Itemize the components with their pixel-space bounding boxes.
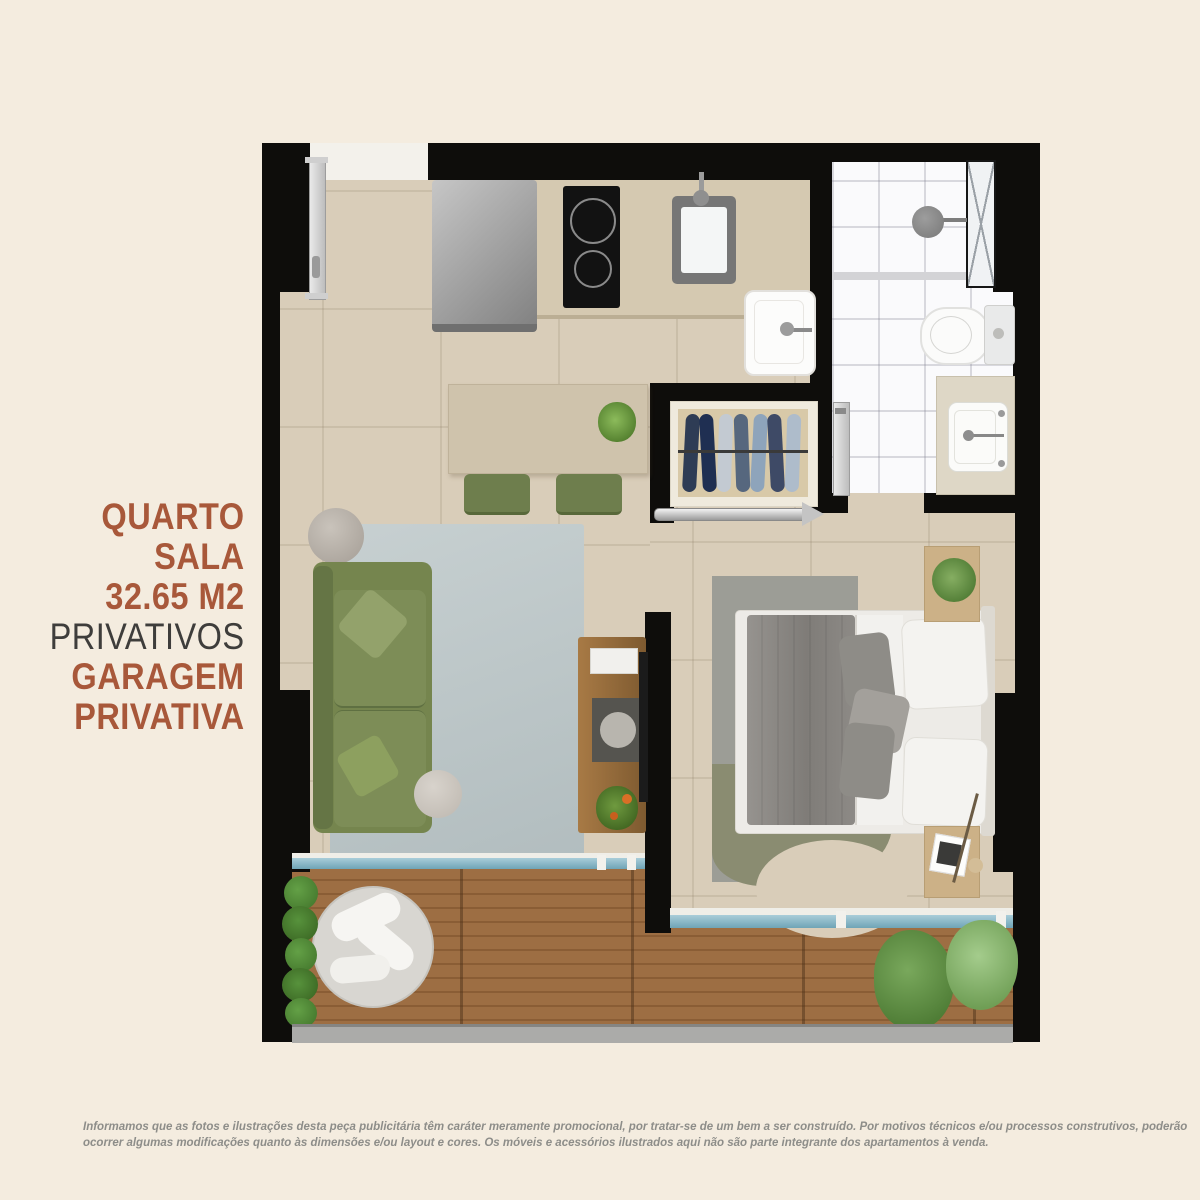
console-plant [596, 786, 638, 830]
floor-plan-marketing-page: QUARTO SALA 32.65 M2 PRIVATIVOS GARAGEM … [0, 0, 1200, 1200]
title-line: SALA [50, 537, 245, 577]
laundry-faucet-spout [792, 328, 812, 332]
laundry-tub-basin [754, 300, 804, 364]
wall-left-lower [262, 690, 310, 872]
bathroom-door-opening [848, 493, 924, 513]
balcony-plant [874, 930, 954, 1030]
table-plant [598, 402, 636, 442]
sliding-door-frame [627, 855, 636, 870]
clothing-item [734, 414, 751, 492]
clothing-item [717, 414, 734, 492]
vanity-sink-basin [954, 410, 996, 464]
sliding-door-living [292, 858, 645, 869]
vanity-accessory [998, 460, 1005, 467]
cooktop-burner-small [574, 250, 612, 288]
dining-chair [556, 474, 622, 515]
toilet-bowl [930, 316, 972, 354]
sliding-door-frame [597, 855, 606, 870]
side-table-round [308, 508, 364, 564]
wall-left [262, 292, 280, 690]
bed-pillow-white [901, 737, 988, 828]
wall-bathroom-bottom [810, 493, 1040, 513]
title-area-value: 32.65 M2 [50, 577, 245, 617]
sofa-backrest [313, 566, 333, 829]
vanity-faucet-spout [972, 434, 1004, 437]
title-line: PRIVATIVOS [50, 617, 245, 657]
vanity-faucet [963, 430, 974, 441]
entry-door-frame-bottom [305, 293, 328, 299]
sliding-door-frame [836, 911, 846, 928]
wall-right-top [993, 143, 1040, 292]
console-bowl [600, 712, 636, 748]
shower-arm [941, 218, 967, 222]
hedge-plant [285, 938, 317, 972]
vanity-accessory [998, 410, 1005, 417]
wall-right-bedroom-thick [993, 693, 1040, 872]
plant-flower [610, 812, 618, 820]
entry-door [309, 160, 326, 300]
bed-pillow-gray [838, 722, 895, 801]
closet-hanging-rail [678, 450, 808, 453]
floor-lamp-base [968, 858, 983, 873]
clothing-item [785, 414, 802, 492]
wall-living-bedroom [645, 612, 671, 933]
hedge-plant [282, 906, 318, 942]
legal-disclaimer: Informamos que as fotos e ilustrações de… [83, 1120, 1123, 1151]
entry-door-frame-top [305, 157, 328, 163]
bathroom-door [833, 402, 850, 496]
nightstand-plant [932, 558, 976, 602]
disclaimer-line: Informamos que as fotos e ilustrações de… [83, 1120, 1123, 1136]
title-line: QUARTO [50, 497, 245, 537]
sliding-door-rail [654, 508, 808, 521]
shower-head [912, 206, 944, 238]
disclaimer-line: ocorrer algumas modificações quanto às d… [83, 1136, 1123, 1152]
title-line: PRIVATIVA [50, 697, 245, 737]
balcony-railing [292, 1024, 1013, 1043]
shower-glass-panel [966, 160, 996, 288]
tv [639, 652, 648, 802]
hedge-plant [282, 968, 318, 1002]
plant-flower [622, 794, 632, 804]
kitchen-sink-basin [681, 207, 727, 273]
dining-chair [464, 474, 530, 515]
bathroom-door-handle [835, 408, 846, 414]
toilet-flush-button [993, 328, 1004, 339]
cooktop-burner-large [570, 198, 616, 244]
fridge [432, 180, 537, 332]
bed-pillow-white [901, 616, 990, 710]
title-line: GARAGEM [50, 657, 245, 697]
kitchen-faucet [693, 190, 709, 206]
hedge-plant [284, 876, 318, 910]
laundry-faucet [780, 322, 794, 336]
entry-door-handle [312, 256, 320, 278]
wall-left-top [262, 143, 310, 292]
console-books [590, 648, 638, 674]
title-block: QUARTO SALA 32.65 M2 PRIVATIVOS GARAGEM … [50, 497, 245, 737]
coffee-table-round [414, 770, 462, 818]
wall-right-bedroom [1015, 513, 1040, 693]
wall-right-bathroom [1013, 292, 1040, 513]
